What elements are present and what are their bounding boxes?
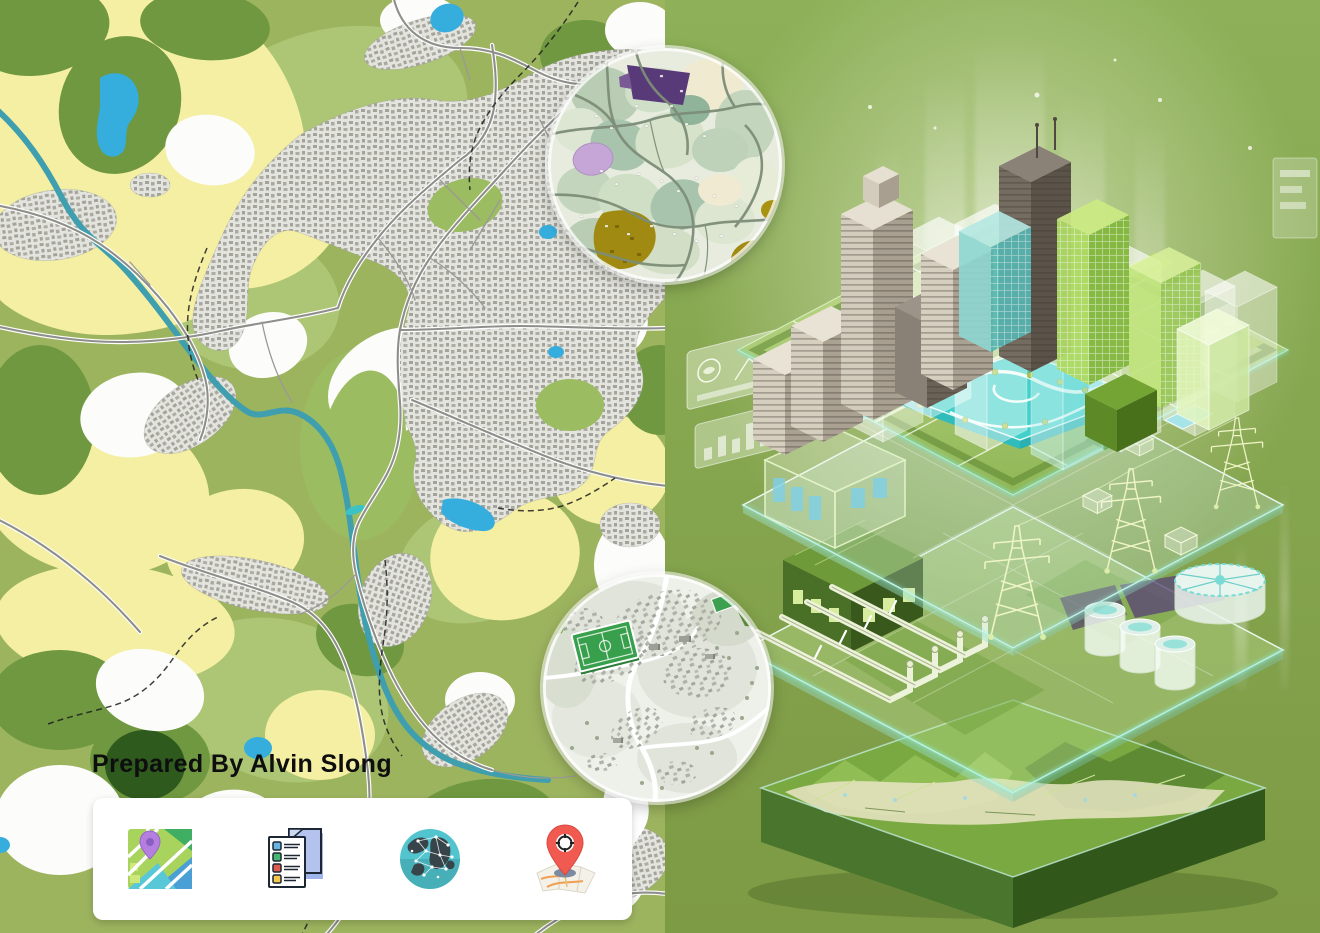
- zoning-detail-inset: [548, 48, 782, 282]
- village-inset-canvas: [543, 574, 771, 802]
- documents-icon: [253, 817, 337, 901]
- teal-glass-tower: [959, 211, 1031, 352]
- footer-icon-bar: [93, 798, 632, 920]
- clarifier-tank: [1175, 564, 1265, 624]
- village-3d-inset: [543, 574, 771, 802]
- map-icon: [118, 817, 202, 901]
- pale-glass-tower: [1177, 309, 1249, 430]
- gis-poster: Prepared By Alvin Slong: [0, 0, 1320, 933]
- prepared-by-label: Prepared By Alvin Slong: [92, 750, 392, 779]
- globe-network-icon: [388, 817, 472, 901]
- map-pin-icon: [523, 817, 607, 901]
- green-glass-tower-large: [1057, 199, 1129, 385]
- zoning-inset-canvas: [548, 48, 782, 282]
